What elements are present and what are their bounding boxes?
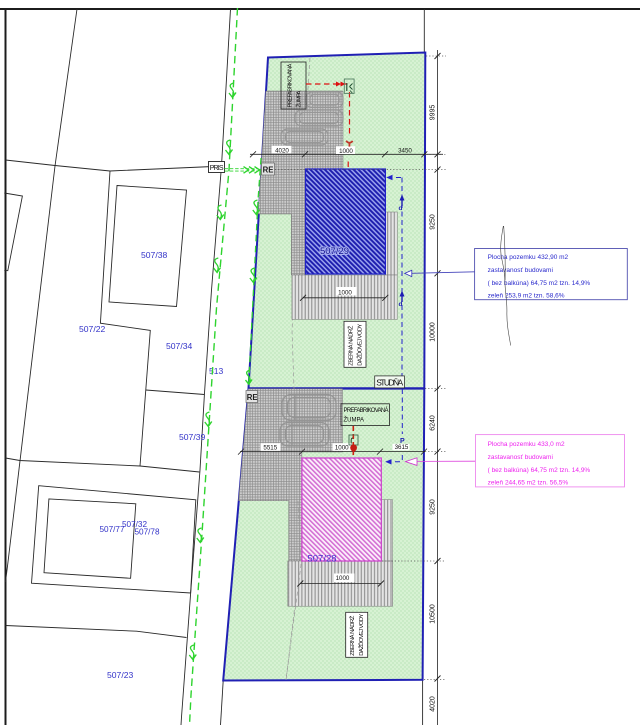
svg-text:4020: 4020 xyxy=(275,147,289,154)
svg-text:507/28: 507/28 xyxy=(307,554,336,565)
svg-text:9250: 9250 xyxy=(430,214,437,230)
svg-text:1000: 1000 xyxy=(335,445,349,452)
svg-text:ŽUMPA: ŽUMPA xyxy=(295,90,303,107)
svg-text:9995: 9995 xyxy=(430,105,437,121)
svg-text:ZBERNÁ NÁDRŽ: ZBERNÁ NÁDRŽ xyxy=(347,325,355,365)
svg-text:STUDŇA: STUDŇA xyxy=(376,378,403,388)
svg-text:9250: 9250 xyxy=(430,499,437,515)
svg-text:zeleň 244,65 m2 tzn. 56,5%: zeleň 244,65 m2 tzn. 56,5% xyxy=(488,480,569,487)
svg-text:5515: 5515 xyxy=(263,445,277,452)
svg-text:PREFABRIKOVANÁ: PREFABRIKOVANÁ xyxy=(344,407,389,414)
svg-text:3450: 3450 xyxy=(398,147,412,154)
svg-text:1000: 1000 xyxy=(338,289,352,296)
svg-text:( bez balkúna) 64,75 m2 tzn. 1: ( bez balkúna) 64,75 m2 tzn. 14,9% xyxy=(488,467,591,474)
svg-text:PREFABRIKOVANÁ: PREFABRIKOVANÁ xyxy=(287,63,294,107)
svg-text:1000: 1000 xyxy=(339,148,353,155)
svg-text:507/23: 507/23 xyxy=(107,670,134,680)
svg-text:507/22: 507/22 xyxy=(79,324,106,334)
svg-text:PRIS: PRIS xyxy=(210,165,224,172)
svg-text:3615: 3615 xyxy=(395,444,409,451)
svg-text:DAŽĎOVEJ VODY: DAŽĎOVEJ VODY xyxy=(356,324,364,366)
svg-text:d: d xyxy=(399,205,403,212)
svg-text:Plocha pozemku 432,90 m2: Plocha pozemku 432,90 m2 xyxy=(488,254,569,261)
svg-text:DAŽĎOVEJ VODY: DAŽĎOVEJ VODY xyxy=(357,614,365,656)
svg-text:4020: 4020 xyxy=(430,696,437,712)
svg-text:ŽUMPA: ŽUMPA xyxy=(344,415,365,423)
svg-text:10500: 10500 xyxy=(430,604,437,624)
svg-text:ZBERNÁ NÁDRŽ: ZBERNÁ NÁDRŽ xyxy=(348,615,356,655)
svg-text:10000: 10000 xyxy=(430,322,437,342)
svg-text:507/39: 507/39 xyxy=(179,432,206,442)
svg-text:6240: 6240 xyxy=(430,415,437,431)
svg-text:zeleň 253,9 m2 tzn. 58,6%: zeleň 253,9 m2 tzn. 58,6% xyxy=(488,293,565,300)
svg-text:zastavanosť budovami: zastavanosť budovami xyxy=(488,267,553,274)
svg-text:507/34: 507/34 xyxy=(166,341,193,351)
svg-text:507/78: 507/78 xyxy=(135,528,160,537)
svg-text:Plocha pozemku 433,0 m2: Plocha pozemku 433,0 m2 xyxy=(488,441,565,448)
svg-text:507/38: 507/38 xyxy=(141,250,168,260)
svg-text:513: 513 xyxy=(209,366,224,376)
svg-text:zastavanosť budovami: zastavanosť budovami xyxy=(488,454,553,461)
svg-text:d: d xyxy=(399,301,403,308)
svg-text:1000: 1000 xyxy=(336,575,350,582)
svg-text:507/29: 507/29 xyxy=(320,246,349,257)
svg-text:RE: RE xyxy=(263,165,274,174)
svg-text:RE: RE xyxy=(247,393,258,402)
svg-text:( bez balkúna) 64,75 m2 tzn. 1: ( bez balkúna) 64,75 m2 tzn. 14,9% xyxy=(488,280,591,287)
